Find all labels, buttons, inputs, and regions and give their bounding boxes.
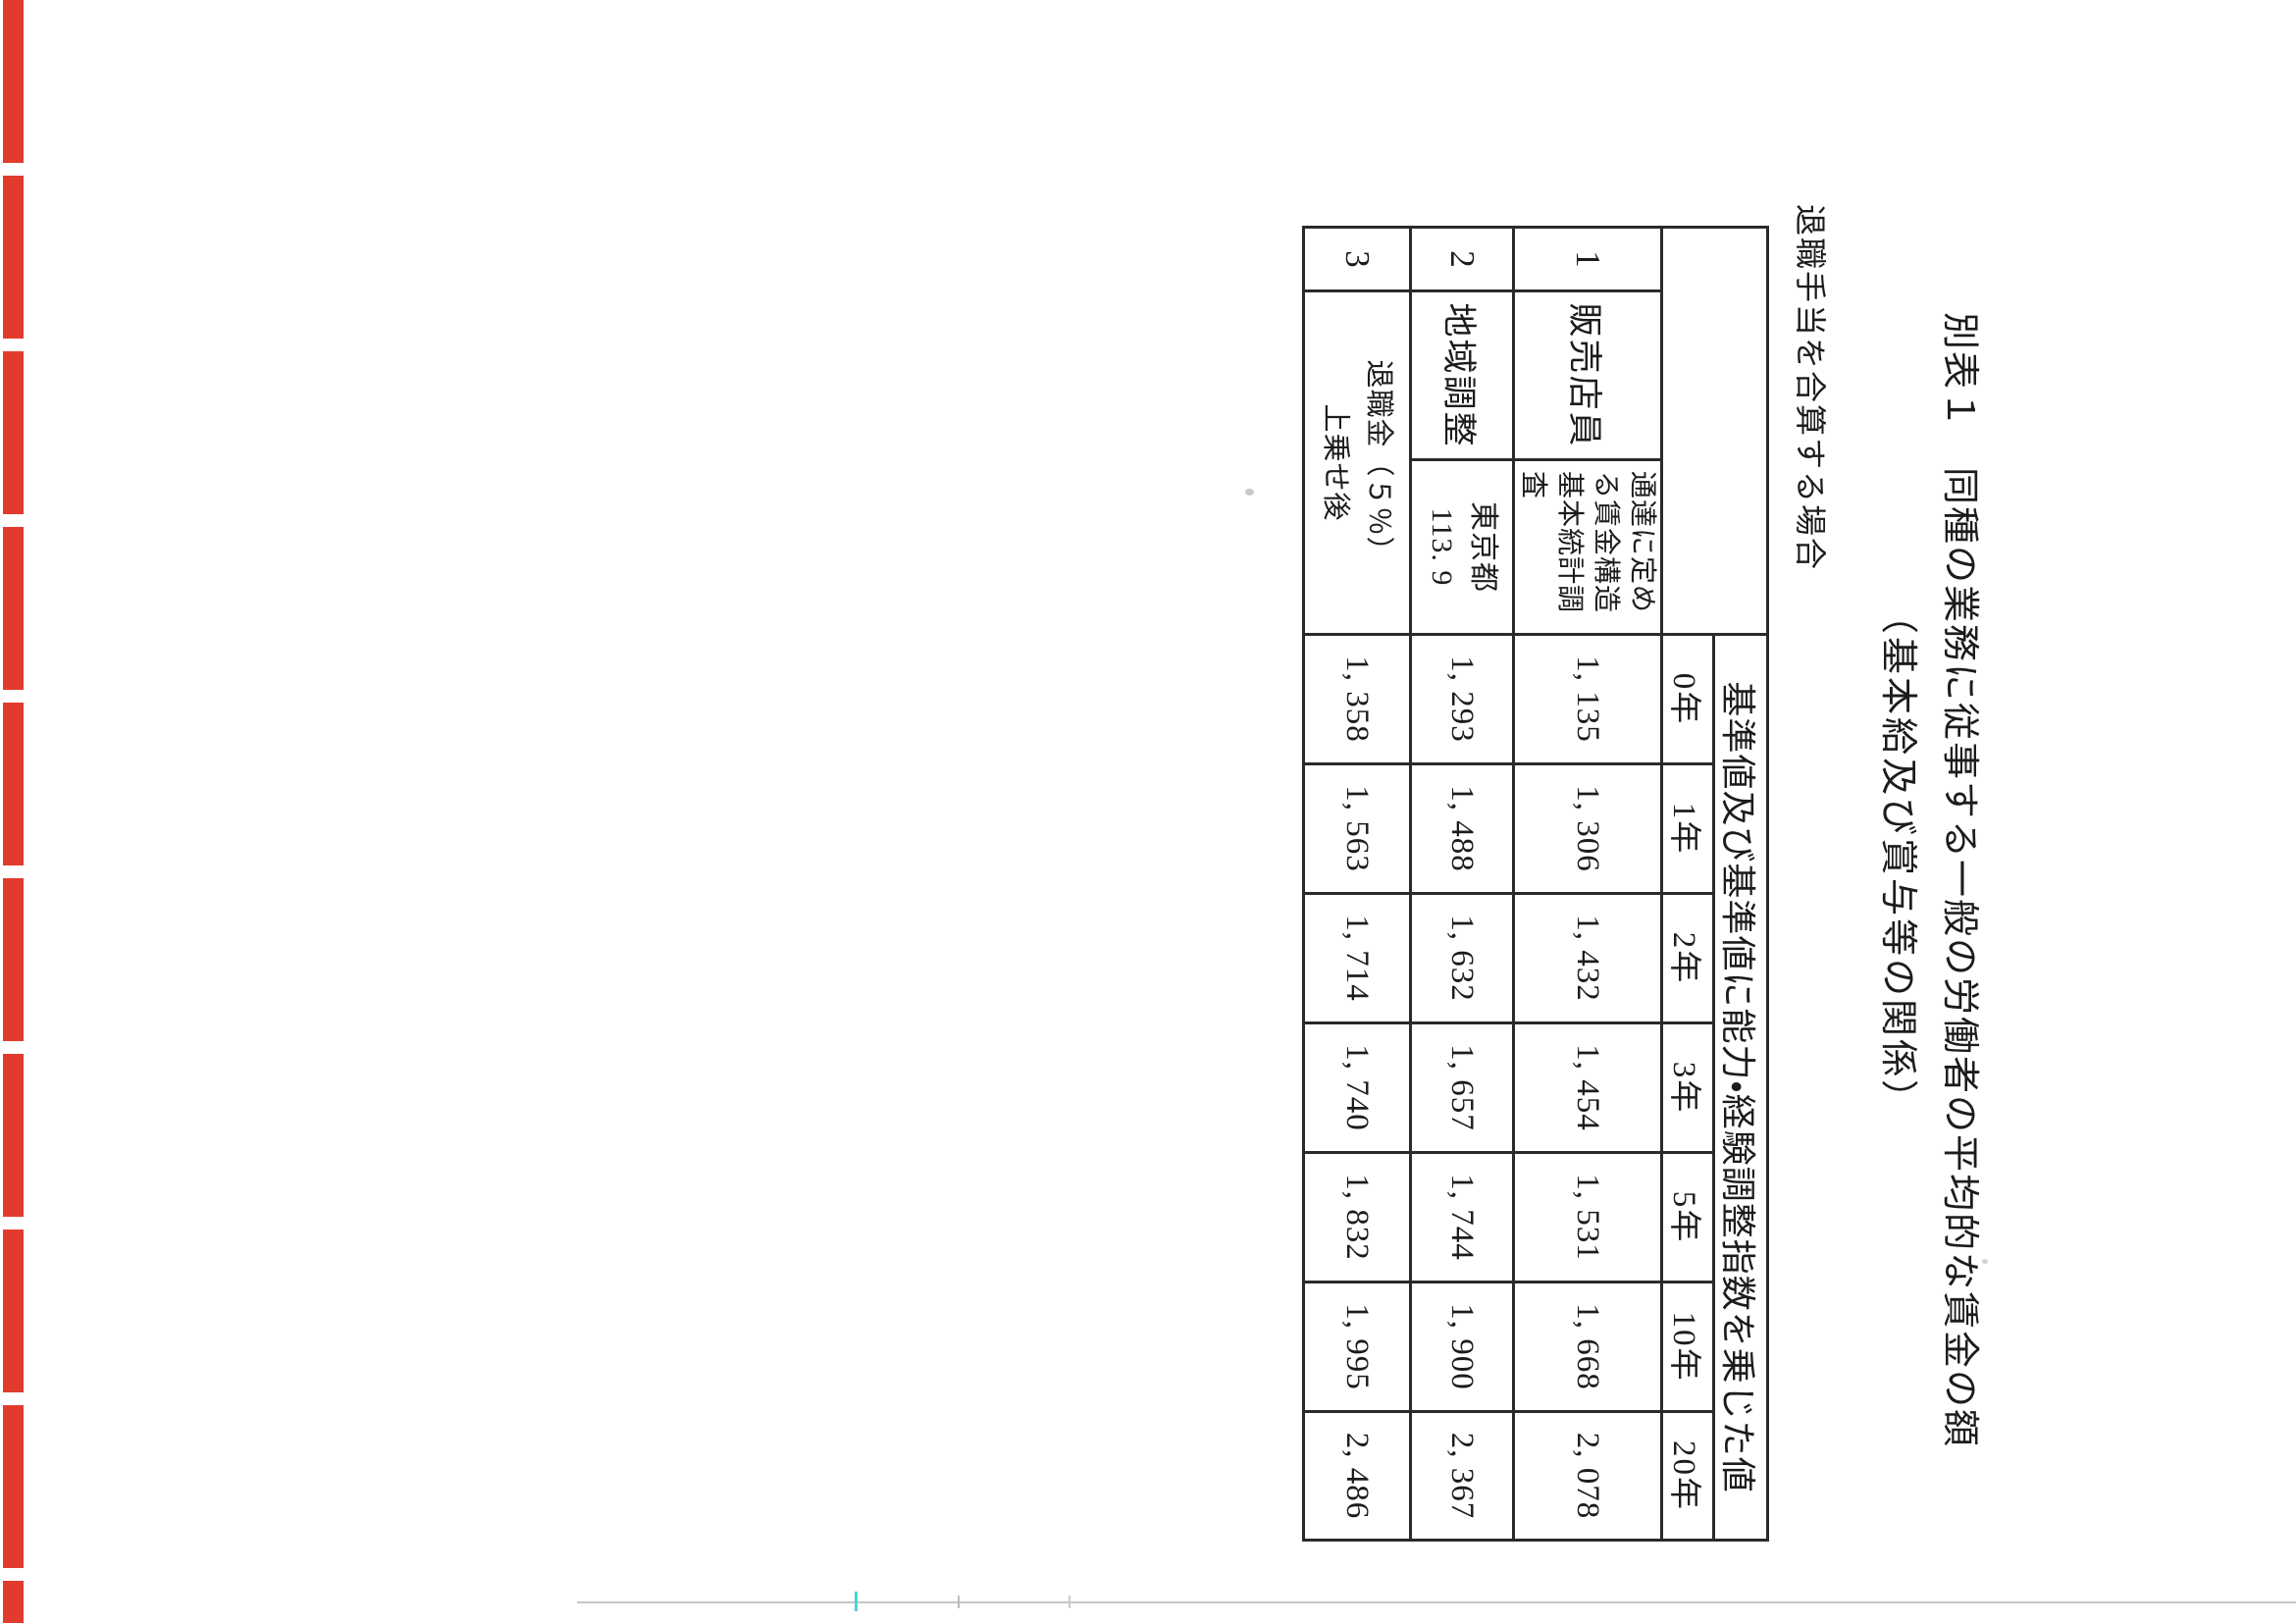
row-label: 地域調整 — [1411, 291, 1514, 460]
value-cell: 1, 135 — [1514, 635, 1662, 764]
value-cell-highlighted: 1, 832 — [1304, 1153, 1411, 1283]
scan-edge-red-strip — [3, 0, 24, 1623]
scan-tick-gray — [958, 1596, 960, 1608]
document-sheet: 別表１ 同種の業務に従事する一般の労働者の平均的な賃金の額 （基本給及び賞与等の… — [0, 0, 2296, 1623]
page-subtitle: （基本給及び賞与等の関係） — [1876, 597, 1919, 1120]
year-header-cell: 1年 — [1662, 764, 1714, 894]
value-cell-highlighted: 1, 714 — [1304, 894, 1411, 1023]
scan-tick-gray — [1069, 1596, 1070, 1608]
value-cell: 1, 293 — [1411, 635, 1514, 764]
row-source-cell: 通達に定める賃金構造基本統計調査 — [1514, 460, 1662, 635]
corner-cell — [1662, 228, 1768, 635]
value-header-cell: 基準値及び基準値に能力・経験調整指数を乗じた値 — [1714, 635, 1768, 1541]
row-number: 2 — [1411, 228, 1514, 291]
row-number: 1 — [1514, 228, 1662, 291]
table-row-2: 2 地域調整 東京都 113. 9 1, 293 1, 488 1, 632 1… — [1411, 228, 1514, 1541]
year-header-cell: 5年 — [1662, 1153, 1714, 1283]
value-cell: 1, 531 — [1514, 1153, 1662, 1283]
value-cell: 1, 744 — [1411, 1153, 1514, 1283]
scan-speck — [1982, 1259, 1988, 1264]
year-header-cell: 10年 — [1662, 1283, 1714, 1412]
table-row-1: 1 販売店員 通達に定める賃金構造基本統計調査 1, 135 1, 306 1,… — [1514, 228, 1662, 1541]
value-cell-highlighted: 1, 995 — [1304, 1283, 1411, 1412]
row-label: 退職金（５％） 上乗せ後 — [1304, 291, 1411, 635]
value-cell-highlighted: 1, 358 — [1304, 635, 1411, 764]
scan-tick-cyan — [855, 1592, 858, 1611]
value-cell: 1, 657 — [1411, 1023, 1514, 1153]
value-cell: 1, 306 — [1514, 764, 1662, 894]
page-title-text: 同種の業務に従事する一般の労働者の平均的な賃金の額 — [1939, 467, 1980, 1448]
title-gap — [1939, 430, 1980, 467]
year-header-cell: 20年 — [1662, 1412, 1714, 1541]
value-cell: 1, 900 — [1411, 1283, 1514, 1412]
value-cell: 1, 432 — [1514, 894, 1662, 1023]
scanned-document: { "page": { "doc_label": "別表１", "title":… — [0, 0, 2296, 1623]
scan-speck — [1245, 489, 1254, 496]
row-source-cell: 東京都 113. 9 — [1411, 460, 1514, 635]
year-header-cell: 3年 — [1662, 1023, 1714, 1153]
value-cell: 1, 488 — [1411, 764, 1514, 894]
value-cell-highlighted: 1, 563 — [1304, 764, 1411, 894]
year-header-cell: 2年 — [1662, 894, 1714, 1023]
note-line: 退職手当を合算する場合 — [1793, 204, 1828, 571]
year-header-cell: 0年 — [1662, 635, 1714, 764]
value-cell-highlighted: 1, 740 — [1304, 1023, 1411, 1153]
value-cell: 1, 632 — [1411, 894, 1514, 1023]
table-row-3: 3 退職金（５％） 上乗せ後 1, 358 1, 563 1, 714 1, 7… — [1304, 228, 1411, 1541]
doc-label: 別表１ — [1939, 312, 1980, 430]
value-cell: 1, 454 — [1514, 1023, 1662, 1153]
value-cell: 1, 668 — [1514, 1283, 1662, 1412]
row-label: 販売店員 — [1514, 291, 1662, 460]
value-cell: 2, 078 — [1514, 1412, 1662, 1541]
page-title: 別表１ 同種の業務に従事する一般の労働者の平均的な賃金の額 — [1939, 312, 1980, 1448]
scan-edge-line — [577, 1601, 2296, 1603]
value-cell: 2, 367 — [1411, 1412, 1514, 1541]
table-row-value-header: 基準値及び基準値に能力・経験調整指数を乗じた値 — [1714, 228, 1768, 1541]
wage-table: 基準値及び基準値に能力・経験調整指数を乗じた値 0年 1年 2年 3年 5年 1… — [1302, 226, 1769, 1542]
row-number: 3 — [1304, 228, 1411, 291]
value-cell-highlighted: 2, 486 — [1304, 1412, 1411, 1541]
